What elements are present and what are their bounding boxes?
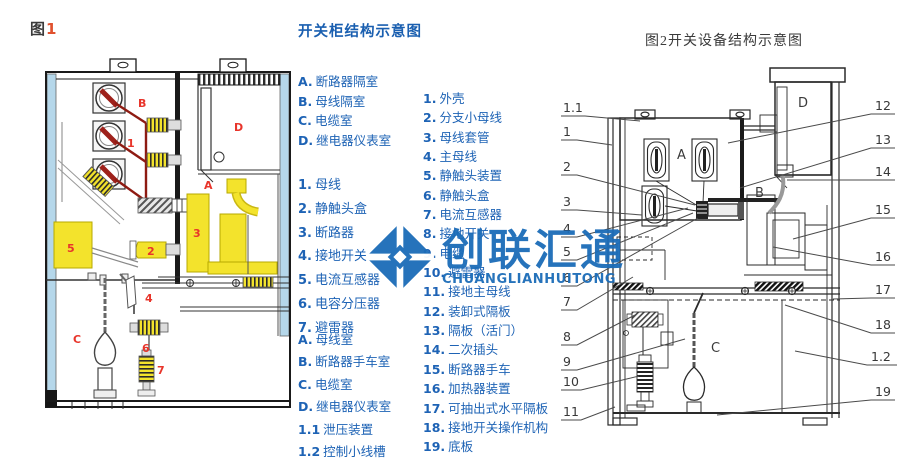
figure1-diagram: B 1 D A 5 2 3 C 4 6 7 bbox=[38, 52, 298, 414]
page: 图1 开关柜结构示意图 图2开关设备结构示意图 A.断路器隔室B.母线隔室C.电… bbox=[0, 0, 900, 474]
figure2-diagram: A B C D 1.1 1 2 3 4 5 6 7 8 9 10 11 12 1… bbox=[555, 55, 900, 474]
legend-item: 11.接地主母线 bbox=[423, 282, 548, 301]
fig2-callout-1-2: 1.2 bbox=[871, 349, 891, 364]
fig1-label-A: A bbox=[204, 179, 213, 192]
legend-item: 1.2控制小线槽 bbox=[298, 441, 391, 463]
legend-item: 1.外壳 bbox=[423, 89, 548, 108]
legend-fig2-parts: 1.外壳2.分支小母线3.母线套管4.主母线5.静触头装置6.静触头盒7.电流互… bbox=[423, 89, 548, 457]
fig2-callout-19: 19 bbox=[875, 384, 891, 399]
fig2-label-B: B bbox=[755, 186, 764, 201]
fig2-callout-2: 2 bbox=[563, 159, 571, 174]
legend-item: 6.静触头盒 bbox=[423, 186, 548, 205]
fig1-label-D: D bbox=[234, 121, 243, 134]
legend-item: C.电缆室 bbox=[298, 111, 391, 131]
legend-fig1-compartments: A.断路器隔室B.母线隔室C.电缆室D.继电器仪表室 bbox=[298, 72, 391, 150]
legend-item: 15.断路器手车 bbox=[423, 360, 548, 379]
figure1-caption-number: 1 bbox=[46, 20, 57, 38]
fig2-callout-10: 10 bbox=[563, 374, 579, 389]
fig2-callout-15: 15 bbox=[875, 202, 891, 217]
legend-item: 17.可抽出式水平隔板 bbox=[423, 399, 548, 418]
fig1-label-3: 3 bbox=[193, 227, 201, 240]
figure1-caption: 图1 bbox=[30, 18, 57, 39]
legend-item: 19.底板 bbox=[423, 437, 548, 456]
fig2-left-door bbox=[608, 118, 620, 425]
legend-item: 4.接地开关 bbox=[298, 245, 380, 269]
fig1-breaker-assembly bbox=[54, 179, 277, 274]
legend-item: 9.电缆 bbox=[423, 244, 548, 263]
fig2-callout-8: 8 bbox=[563, 329, 571, 344]
fig1-label-4: 4 bbox=[145, 292, 153, 305]
fig1-label-5: 5 bbox=[67, 242, 75, 255]
fig2-callout-4: 4 bbox=[563, 221, 571, 236]
legend-item: 5.静触头装置 bbox=[423, 166, 548, 185]
fig2-callout-12: 12 bbox=[875, 98, 891, 113]
fig2-callout-16: 16 bbox=[875, 249, 891, 264]
legend-item: 8.接地开关 bbox=[423, 224, 548, 243]
fig1-label-6: 6 bbox=[142, 342, 150, 355]
fig2-callout-11: 11 bbox=[563, 404, 579, 419]
legend-item: 5.电流互感器 bbox=[298, 269, 380, 293]
fig1-handcart-rails bbox=[46, 277, 289, 311]
figure1-caption-prefix: 图 bbox=[30, 20, 46, 38]
legend-item: A.断路器隔室 bbox=[298, 72, 391, 92]
fig2-callout-1-1: 1.1 bbox=[563, 100, 583, 115]
legend-item: 10.避雷器 bbox=[423, 263, 548, 282]
fig2-leader-lines bbox=[561, 114, 897, 420]
fig2-callout-7: 7 bbox=[563, 294, 571, 309]
legend-item: 12.装卸式隔板 bbox=[423, 302, 548, 321]
fig1-label-B: B bbox=[138, 97, 146, 110]
legend-item: 14.二次插头 bbox=[423, 340, 548, 359]
fig1-cable-compartment bbox=[88, 273, 168, 398]
legend-fig2-compartments: A.母线室B.断路器手车室C.电缆室D.继电器仪表室1.1泄压装置1.2控制小线… bbox=[298, 329, 391, 463]
fig2-callout-17: 17 bbox=[875, 282, 891, 297]
legend-item: 1.母线 bbox=[298, 174, 380, 198]
legend-item: 2.分支小母线 bbox=[423, 108, 548, 127]
legend-item: 6.电容分压器 bbox=[298, 293, 380, 317]
fig2-callout-5: 5 bbox=[563, 244, 571, 259]
legend-item: 16.加热器装置 bbox=[423, 379, 548, 398]
legend-item: 13.隔板（活门） bbox=[423, 321, 548, 340]
legend-item: 7.电流互感器 bbox=[423, 205, 548, 224]
fig2-callout-18: 18 bbox=[875, 317, 891, 332]
fig1-label-2: 2 bbox=[147, 245, 155, 258]
legend-fig1-parts: 1.母线2.静触头盒3.断路器4.接地开关5.电流互感器6.电容分压器7.避雷器 bbox=[298, 174, 380, 341]
fig2-label-C: C bbox=[711, 341, 720, 356]
fig2-breaker-compartment bbox=[617, 165, 832, 280]
fig2-label-A: A bbox=[677, 148, 686, 163]
fig1-label-7: 7 bbox=[157, 364, 165, 377]
legend-item: C.电缆室 bbox=[298, 374, 391, 396]
fig2-callout-3: 3 bbox=[563, 194, 571, 209]
fig2-callout-13: 13 bbox=[875, 132, 891, 147]
fig2-label-D: D bbox=[798, 96, 808, 111]
fig1-label-1: 1 bbox=[127, 137, 135, 150]
fig2-callout-14: 14 bbox=[875, 164, 891, 179]
fig2-callout-9: 9 bbox=[563, 354, 571, 369]
legend-item: 4.主母线 bbox=[423, 147, 548, 166]
fig2-callout-1: 1 bbox=[563, 124, 571, 139]
legend-item: 3.断路器 bbox=[298, 222, 380, 246]
fig2-rails bbox=[613, 282, 840, 300]
legend-item: 18.接地开关操作机构 bbox=[423, 418, 548, 437]
legend-item: D.继电器仪表室 bbox=[298, 396, 391, 418]
legend-item: 3.母线套管 bbox=[423, 128, 548, 147]
fig2-contact-assembly bbox=[696, 198, 778, 219]
legend-item: B.母线隔室 bbox=[298, 92, 391, 112]
legend-item: B.断路器手车室 bbox=[298, 351, 391, 373]
legend-item: 1.1泄压装置 bbox=[298, 419, 391, 441]
legend-title: 开关柜结构示意图 bbox=[298, 20, 422, 41]
legend-item: A.母线室 bbox=[298, 329, 391, 351]
fig1-label-C: C bbox=[73, 333, 81, 346]
legend-item: 2.静触头盒 bbox=[298, 198, 380, 222]
fig2-callout-6: 6 bbox=[563, 270, 571, 285]
legend-item: D.继电器仪表室 bbox=[298, 131, 391, 151]
fig2-right-callouts: 12 13 14 15 16 17 18 1.2 19 bbox=[871, 98, 891, 399]
figure2-title: 图2开关设备结构示意图 bbox=[645, 30, 803, 50]
